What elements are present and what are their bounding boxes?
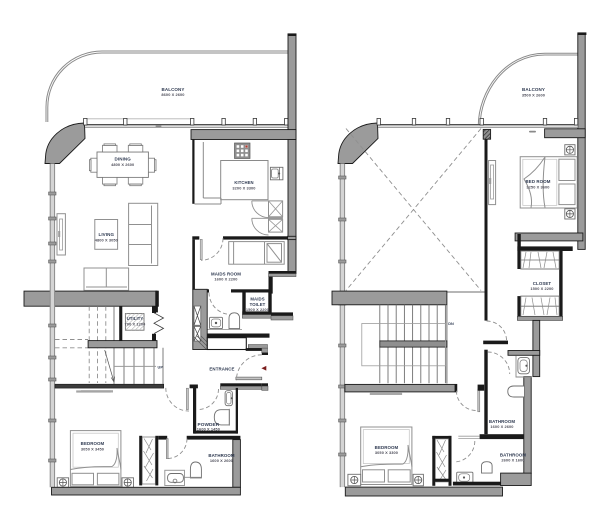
svg-text:BED ROOM: BED ROOM [526,179,551,184]
svg-text:1600 X 2600: 1600 X 2600 [490,424,513,429]
svg-text:BALCONY: BALCONY [522,87,545,92]
svg-text:3050 X 3450: 3050 X 3450 [81,446,104,451]
svg-text:4800 X 2600: 4800 X 2600 [111,162,134,167]
svg-text:8600 X 2600: 8600 X 2600 [161,92,184,97]
svg-text:3250 X 3600: 3250 X 3600 [526,185,549,190]
svg-text:4800 X 3050: 4800 X 3050 [95,237,118,242]
svg-text:UTILITY: UTILITY [127,316,144,321]
svg-text:700 X 1200: 700 X 1200 [125,321,146,326]
svg-text:3500 X 2600: 3500 X 2600 [522,92,545,97]
svg-text:3050 X 3300: 3050 X 3300 [375,450,398,455]
svg-text:MAIDS: MAIDS [250,297,264,302]
svg-text:LIVING: LIVING [98,232,114,237]
svg-text:2600 X 1600: 2600 X 1600 [501,457,524,462]
svg-text:1600 X 2600: 1600 X 2600 [210,458,233,463]
svg-text:UP: UP [158,366,164,370]
svg-text:KITCHEN: KITCHEN [234,180,253,185]
svg-text:3200 X 3300: 3200 X 3300 [232,185,255,190]
svg-text:1600 X 1450: 1600 X 1450 [197,426,220,431]
svg-text:MAIDS ROOM: MAIDS ROOM [211,271,241,276]
svg-text:ENTRANCE: ENTRANCE [209,366,234,371]
svg-text:DINING: DINING [115,157,132,162]
svg-text:1500 X 2200: 1500 X 2200 [246,307,269,312]
svg-text:BEDROOM: BEDROOM [81,441,105,446]
svg-text:DN: DN [448,322,454,326]
svg-text:1500 X 2200: 1500 X 2200 [530,286,553,291]
svg-text:1600 X 2200: 1600 X 2200 [214,277,237,282]
